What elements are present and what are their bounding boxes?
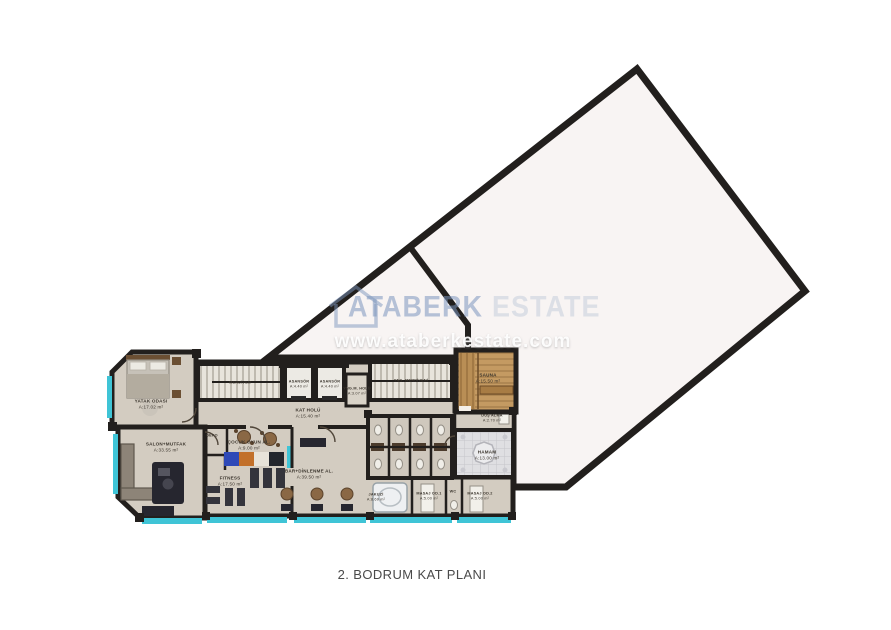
room-label-merdiven: MERDİVEN	[229, 381, 251, 386]
play-mat	[224, 452, 239, 466]
room-area: A:8.69 m²	[367, 497, 385, 502]
room-name: ÇOCUK OYUN AL.	[228, 439, 271, 445]
room-area: A:17.50 m²	[218, 481, 242, 487]
room-label-dus-alma: DUŞ ALMA A:2.70 m²	[481, 413, 503, 422]
room-area: A:13.00 m²	[475, 455, 499, 461]
room-name: YATAK ODASI	[135, 398, 168, 404]
room-area: A:3.07 m²	[343, 391, 371, 396]
room-area: A:9.00 m²	[228, 445, 271, 451]
room-label-salon-mutfak: SALON+MUTFAK A:33.55 m²	[146, 441, 186, 452]
room-label-yngm-holu: YNG.M. HOLÜ A:3.07 m²	[343, 386, 371, 395]
room-area: A:15.50 m²	[476, 378, 500, 384]
room-label-masaj-1: MASAJ OD.1 A:5.00 m²	[416, 491, 441, 500]
room-label-yangin-merdiveni: YNG. MERDİVENİ	[394, 379, 428, 384]
wc-cabin-block	[368, 416, 452, 478]
room-label-bar-dinlenme: BAR+DİNLENME AL. A:39.50 m²	[285, 468, 333, 479]
room-area: A:5.00 m²	[416, 496, 441, 501]
room-area: A:33.55 m²	[146, 447, 186, 453]
room-area: A:5.00 m²	[467, 496, 492, 501]
floor-plan-page: YATAK ODASI A:17.02 m² SALON+MUTFAK A:33…	[0, 0, 891, 630]
room-label-fitness: FITNESS A:17.50 m²	[218, 475, 242, 486]
room-name: DEPO	[206, 434, 218, 439]
room-label-jakuzi: JAKUZİ A:8.69 m²	[367, 492, 385, 501]
room-area: A:17.02 m²	[135, 404, 168, 410]
page-title: 2. BODRUM KAT PLANI	[338, 567, 487, 582]
room-label-wc: WC	[450, 490, 457, 495]
room-area: A:39.50 m²	[285, 474, 333, 480]
room-name: KAT HOLÜ	[296, 407, 321, 413]
room-area: A:2.70 m²	[481, 418, 503, 423]
room-name: BAR+DİNLENME AL.	[285, 468, 333, 474]
room-label-sauna: SAUNA A:15.50 m²	[476, 372, 500, 383]
room-label-hamam: HAMAM A:13.00 m²	[475, 449, 499, 460]
room-name: SALON+MUTFAK	[146, 441, 186, 447]
room-name: YNG. MERDİVENİ	[394, 379, 428, 384]
room-label-kat-holu: KAT HOLÜ A:15.40 m²	[296, 407, 321, 418]
room-label-asansor-1: ASANSÖR A:4.40 m²	[289, 379, 309, 388]
room-name: MERDİVEN	[229, 381, 251, 386]
room-label-cocuk-oyun: ÇOCUK OYUN AL. A:9.00 m²	[228, 439, 271, 450]
room-area: A:15.40 m²	[296, 413, 321, 419]
room-name: FITNESS	[218, 475, 242, 481]
room-name: WC	[450, 490, 457, 495]
room-area: A:4.40 m²	[289, 384, 309, 389]
room-area: A:4.40 m²	[320, 384, 340, 389]
room-label-yatak-odasi: YATAK ODASI A:17.02 m²	[135, 398, 168, 409]
floor-plan-drawing	[0, 0, 891, 630]
room-label-asansor-2: ASANSÖR A:4.40 m²	[320, 379, 340, 388]
room-label-masaj-2: MASAJ OD.2 A:5.00 m²	[467, 491, 492, 500]
room-label-depo: DEPO	[206, 434, 218, 439]
room-name: SAUNA	[476, 372, 500, 378]
room-name: HAMAM	[475, 449, 499, 455]
